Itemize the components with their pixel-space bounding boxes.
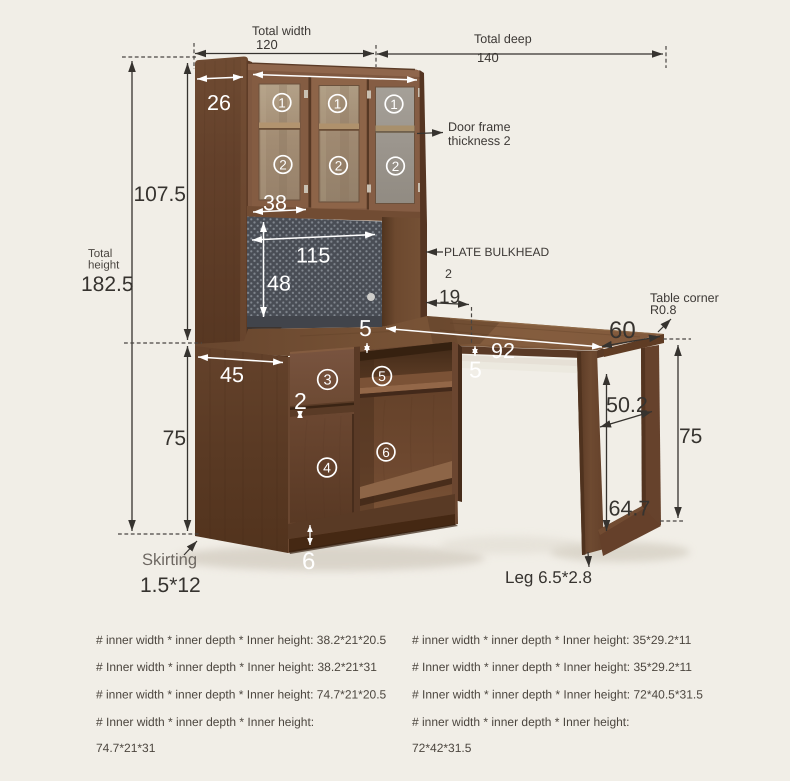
- svg-text:PLATE BULKHEAD: PLATE BULKHEAD: [444, 245, 549, 259]
- svg-text:height: height: [88, 260, 120, 272]
- svg-text:64.7: 64.7: [609, 497, 651, 521]
- svg-text:# inner width * inner depth *: # inner width * inner depth * Inner heig…: [96, 688, 387, 702]
- svg-text:Skirting: Skirting: [142, 551, 197, 569]
- svg-text:2: 2: [445, 267, 452, 281]
- svg-text:# inner width * inner depth *: # inner width * inner depth * Inner heig…: [412, 715, 629, 729]
- svg-text:2: 2: [294, 388, 307, 414]
- svg-text:5: 5: [469, 357, 482, 383]
- svg-text:2: 2: [392, 159, 400, 174]
- svg-text:3: 3: [323, 373, 331, 389]
- svg-text:75: 75: [163, 427, 186, 450]
- svg-text:5: 5: [359, 315, 372, 341]
- svg-text:107.5: 107.5: [133, 183, 186, 206]
- svg-text:5: 5: [378, 368, 386, 384]
- svg-text:1.5*12: 1.5*12: [140, 574, 201, 597]
- svg-text:R0.8: R0.8: [650, 303, 676, 317]
- svg-text:thickness 2: thickness 2: [448, 134, 511, 148]
- svg-text:120: 120: [256, 37, 278, 52]
- svg-text:6: 6: [382, 445, 390, 460]
- svg-text:# Inner width * inner depth *: # Inner width * inner depth * Inner heig…: [96, 715, 314, 729]
- svg-text:19: 19: [439, 287, 460, 308]
- svg-text:50.2: 50.2: [606, 393, 648, 417]
- svg-text:26: 26: [207, 91, 231, 115]
- svg-text:Door frame: Door frame: [448, 120, 511, 134]
- svg-text:140: 140: [477, 50, 499, 65]
- svg-text:182.5: 182.5: [81, 273, 134, 296]
- svg-text:Total: Total: [88, 248, 112, 260]
- svg-text:# Inner width * inner depth *: # Inner width * inner depth * Inner heig…: [412, 660, 692, 674]
- svg-text:92: 92: [491, 339, 515, 363]
- svg-text:115: 115: [296, 244, 330, 268]
- svg-text:1: 1: [334, 96, 342, 111]
- svg-text:Total width: Total width: [252, 24, 311, 38]
- svg-text:60: 60: [609, 317, 636, 344]
- svg-text:2: 2: [335, 158, 343, 173]
- svg-text:Leg 6.5*2.8: Leg 6.5*2.8: [505, 568, 592, 587]
- svg-text:45: 45: [220, 363, 244, 387]
- svg-text:# Inner width * inner depth *: # Inner width * inner depth * Inner heig…: [96, 660, 377, 674]
- svg-text:Total deep: Total deep: [474, 32, 532, 46]
- svg-text:74.7*21*31: 74.7*21*31: [96, 741, 156, 755]
- svg-text:1: 1: [390, 97, 398, 112]
- svg-text:# Inner width * inner depth *: # Inner width * inner depth * Inner heig…: [412, 688, 703, 702]
- svg-text:48: 48: [267, 272, 291, 296]
- svg-text:75: 75: [679, 425, 702, 448]
- svg-text:72*42*31.5: 72*42*31.5: [412, 741, 472, 755]
- svg-text:6: 6: [302, 548, 315, 575]
- svg-text:4: 4: [323, 459, 331, 475]
- svg-text:# inner width * inner depth *: # inner width * inner depth * Inner heig…: [412, 633, 692, 647]
- svg-text:1: 1: [278, 95, 286, 110]
- svg-text:# inner width * inner depth *: # inner width * inner depth * Inner heig…: [96, 633, 387, 647]
- svg-text:2: 2: [279, 157, 287, 172]
